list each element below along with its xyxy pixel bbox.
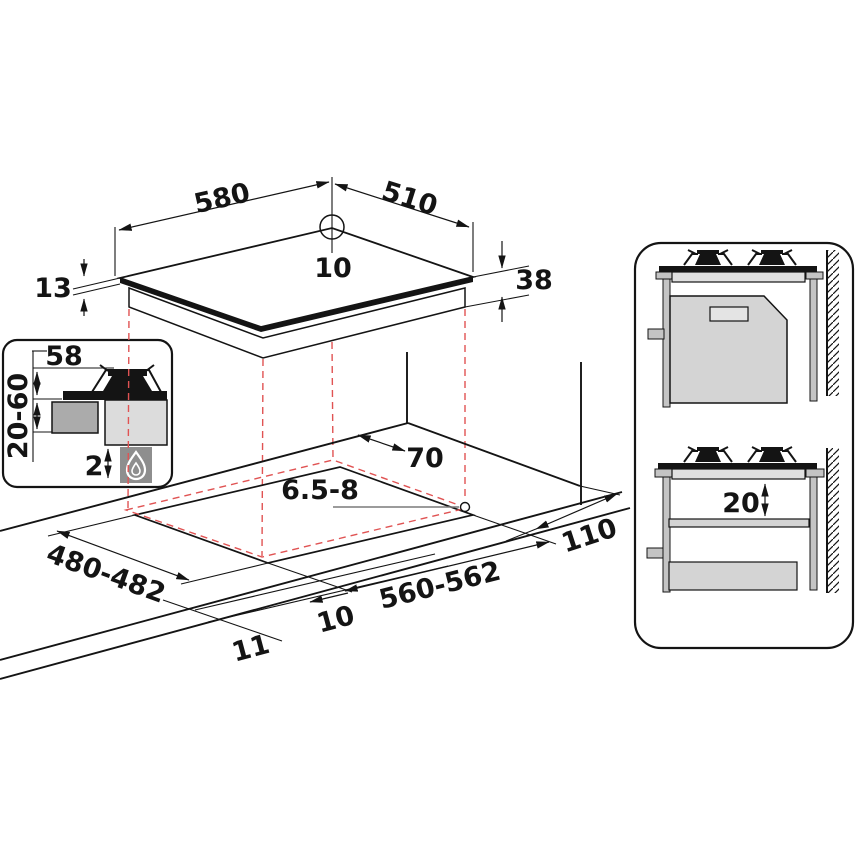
- dim-label-front-overhang: 10: [314, 600, 358, 640]
- hob-underside: [672, 469, 805, 479]
- diagram-canvas: 580 510 10 13 38 70 6.5-8: [0, 0, 860, 860]
- dim-label-rear-clearance: 70: [406, 443, 444, 474]
- clamp-right: [806, 469, 824, 477]
- side-bracket: [647, 548, 663, 558]
- cabinet-side-right: [810, 469, 817, 590]
- dim-label-below-clearance: 20-60: [3, 373, 34, 459]
- dim-label-side-clearance: 110: [558, 512, 621, 559]
- dim-label-depth: 510: [378, 176, 441, 223]
- dim-line-70: [358, 435, 405, 451]
- oven-vent: [710, 307, 748, 321]
- section-views-panel: 20: [635, 243, 853, 648]
- side-bracket: [648, 329, 664, 339]
- dim-label-bottom-gap: 2: [85, 451, 104, 482]
- burner-cap-top: [108, 371, 147, 376]
- separator-shelf: [669, 519, 809, 527]
- clamp-left: [655, 469, 672, 477]
- hob-body-section: [105, 400, 167, 445]
- installation-diagram: 580 510 10 13 38 70 6.5-8: [0, 0, 860, 860]
- projection-line-back: [332, 342, 333, 459]
- dim-label-thickness: 6.5-8: [281, 475, 359, 506]
- hob-surface-section: [63, 391, 167, 400]
- dim-label-width: 580: [191, 177, 253, 220]
- wall-hatching: [828, 448, 839, 593]
- wall-hatching: [828, 250, 839, 396]
- drawer-box: [669, 562, 797, 590]
- hob-underside: [672, 272, 805, 282]
- worktop-front-edge-bottom: [0, 508, 630, 679]
- fixing-hole-circle: [461, 503, 470, 512]
- ext-line-38-bottom: [465, 295, 529, 307]
- section-above-oven: [648, 250, 839, 407]
- dim-label-body-height: 38: [515, 265, 553, 296]
- dim-label-burner-clearance: 58: [45, 341, 83, 372]
- dim-label-glass-height: 13: [34, 273, 72, 304]
- hob-surface-bar: [658, 463, 817, 469]
- clamp-right: [806, 272, 823, 279]
- dim-label-cutout-width: 560-562: [376, 556, 504, 616]
- clamp-left: [656, 272, 672, 279]
- ext-line-13-top: [73, 278, 120, 289]
- dim-label-shelf-clearance: 20: [722, 488, 760, 519]
- projection-line-left: [128, 309, 129, 508]
- projection-line-front: [262, 359, 263, 556]
- adjacent-unit-block: [52, 402, 98, 433]
- dim-label-rear-offset: 10: [314, 253, 352, 284]
- section-above-drawer: 20: [647, 447, 839, 593]
- ext-line-13-bottom: [73, 284, 120, 295]
- cabinet-side-right: [810, 272, 817, 401]
- hob-surface-bar: [659, 266, 817, 272]
- burner-inset-box: 58 20-60 2: [3, 340, 172, 487]
- ext-line-480-right: [181, 563, 268, 584]
- dim-label-side-overhang: 11: [229, 629, 273, 669]
- dim-arrow-10-front: [310, 593, 348, 602]
